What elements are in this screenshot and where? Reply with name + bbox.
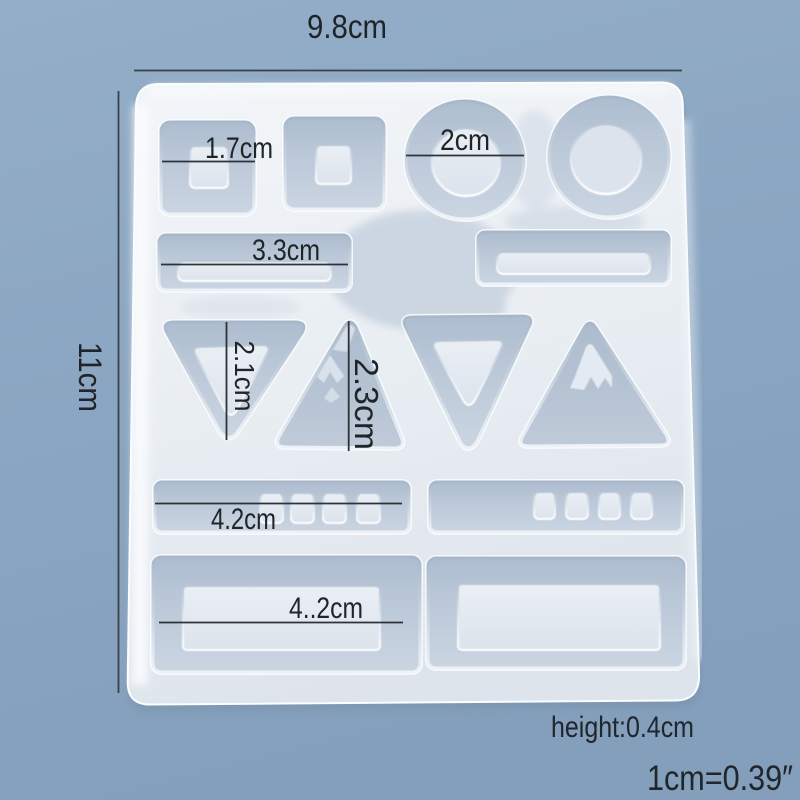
svg-text:2.1cm: 2.1cm <box>229 341 260 412</box>
svg-text:1cm=0.39″: 1cm=0.39″ <box>647 759 793 798</box>
svg-text:11cm: 11cm <box>72 342 108 412</box>
svg-text:3.3cm: 3.3cm <box>252 234 320 267</box>
svg-text:1.7cm: 1.7cm <box>205 132 273 165</box>
svg-text:4.2cm: 4.2cm <box>211 503 276 536</box>
svg-text:height:0.4cm: height:0.4cm <box>551 711 694 744</box>
svg-text:9.8cm: 9.8cm <box>307 8 387 45</box>
svg-text:2cm: 2cm <box>440 124 490 157</box>
svg-text:4..2cm: 4..2cm <box>289 592 363 625</box>
svg-text:2.3cm: 2.3cm <box>348 358 385 450</box>
